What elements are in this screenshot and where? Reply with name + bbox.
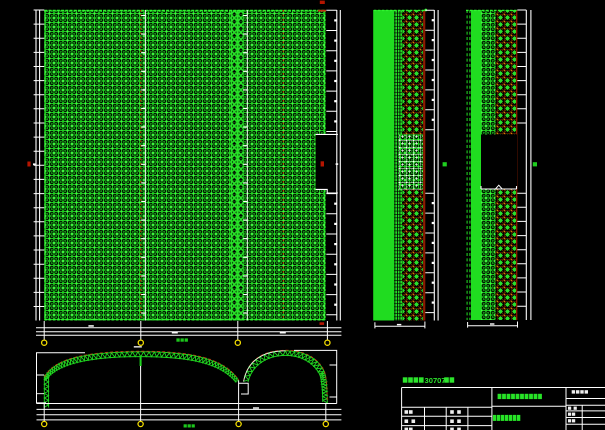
svg-text:30707: 30707 <box>425 376 446 385</box>
